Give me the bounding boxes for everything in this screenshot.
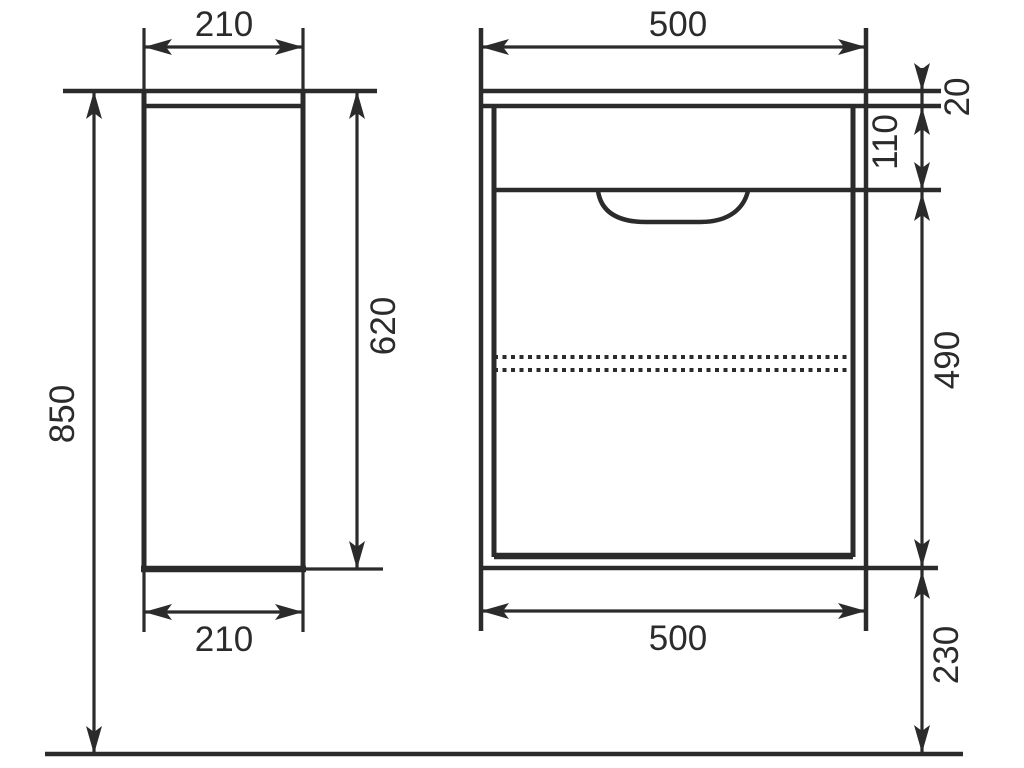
dim-label-side-width-top: 210	[195, 5, 253, 44]
drawing-canvas: 210 850 620 210	[0, 0, 1024, 768]
dim-side-width-top: 210	[144, 5, 303, 89]
dim-side-width-bottom: 210	[144, 572, 303, 659]
dim-side-total-height: 850	[43, 91, 102, 754]
dim-label-side-body-height: 620	[364, 297, 403, 355]
arrowhead-down	[914, 63, 930, 91]
dim-label-side-width-bottom: 210	[195, 620, 253, 659]
dim-label-front-width-top: 500	[649, 5, 707, 44]
side-view: 210 850 620 210	[43, 5, 403, 754]
dim-side-body-height: 620	[305, 91, 403, 569]
dim-front-right-stack: 20 110 490 230	[866, 63, 977, 753]
dim-label-side-total-height: 850	[43, 385, 82, 443]
dim-label-lower-body-height: 490	[928, 331, 967, 389]
dim-front-width-bottom: 500	[481, 603, 866, 658]
dim-label-floor-clearance: 230	[927, 626, 966, 684]
dim-label-worktop-thickness: 20	[938, 78, 977, 117]
dim-label-drawer-front-height: 110	[866, 114, 905, 170]
dim-front-width-top: 500	[481, 5, 866, 55]
front-view: 500 20 110 490 230 500	[481, 5, 977, 753]
front-handle-recess-arc	[598, 191, 748, 222]
dim-label-front-width-bottom: 500	[649, 619, 707, 658]
